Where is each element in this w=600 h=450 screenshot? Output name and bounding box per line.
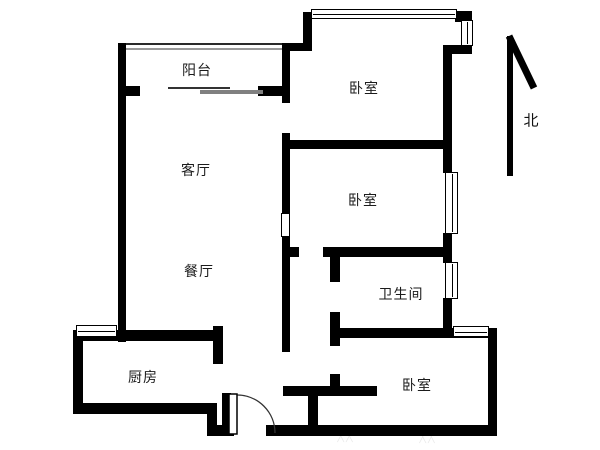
wall [443,298,452,332]
floor-plan: 阳台 客厅 餐厅 厨房 卧室 卧室 卫生间 卧室 北 ╳╳ ╳╳ [0,0,600,450]
wall [330,247,340,282]
room-label-balcony: 阳台 [182,63,212,77]
entrance-door-icon [226,392,278,438]
compass-north-label: 北 [523,114,538,129]
wall [283,386,377,396]
wall [443,45,452,173]
window-icon [453,326,489,337]
window-icon [445,172,458,234]
sliding-door-icon [200,90,263,94]
room-label-bedroom-south: 卧室 [402,378,432,392]
wall [282,236,290,352]
wall [213,326,223,364]
door-icon [281,213,290,237]
watermark: ╳╳ [337,430,354,443]
room-label-bedroom-middle: 卧室 [348,193,378,207]
window-icon [445,262,458,299]
wall [323,247,452,257]
balcony-parapet-line [120,48,290,50]
wall [282,140,448,149]
wall [488,328,497,436]
sliding-door-icon [168,87,230,89]
room-label-bathroom: 卫生间 [379,287,424,301]
balcony-parapet-line [120,43,290,45]
wall [330,312,340,346]
room-label-living-room: 客厅 [181,163,211,177]
watermark: ╳╳ [419,431,436,444]
room-label-bedroom-north: 卧室 [349,81,379,95]
window-icon [461,20,473,46]
north-arrow-icon [498,28,544,180]
wall [290,247,299,257]
wall [73,330,83,414]
wall [73,403,217,414]
wall [118,86,140,96]
room-label-dining-room: 餐厅 [184,264,214,278]
window-icon [311,9,457,19]
room-label-kitchen: 厨房 [128,370,158,384]
wall [308,394,318,427]
wall [266,425,497,436]
window-icon [76,325,117,337]
wall [282,43,290,103]
